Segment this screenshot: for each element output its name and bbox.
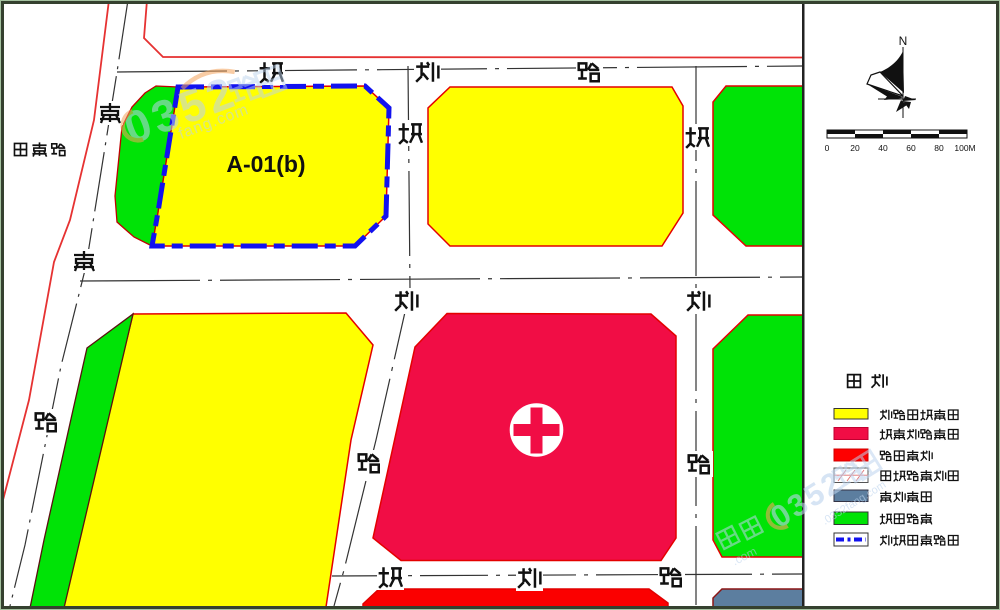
svg-text:0: 0 xyxy=(825,143,830,153)
svg-text:60: 60 xyxy=(906,143,916,153)
svg-text:100M: 100M xyxy=(954,143,975,153)
svg-text:A-01(b): A-01(b) xyxy=(226,151,305,177)
svg-text:40: 40 xyxy=(878,143,888,153)
svg-text:80: 80 xyxy=(934,143,944,153)
svg-text:N: N xyxy=(899,34,908,48)
svg-text:20: 20 xyxy=(850,143,860,153)
